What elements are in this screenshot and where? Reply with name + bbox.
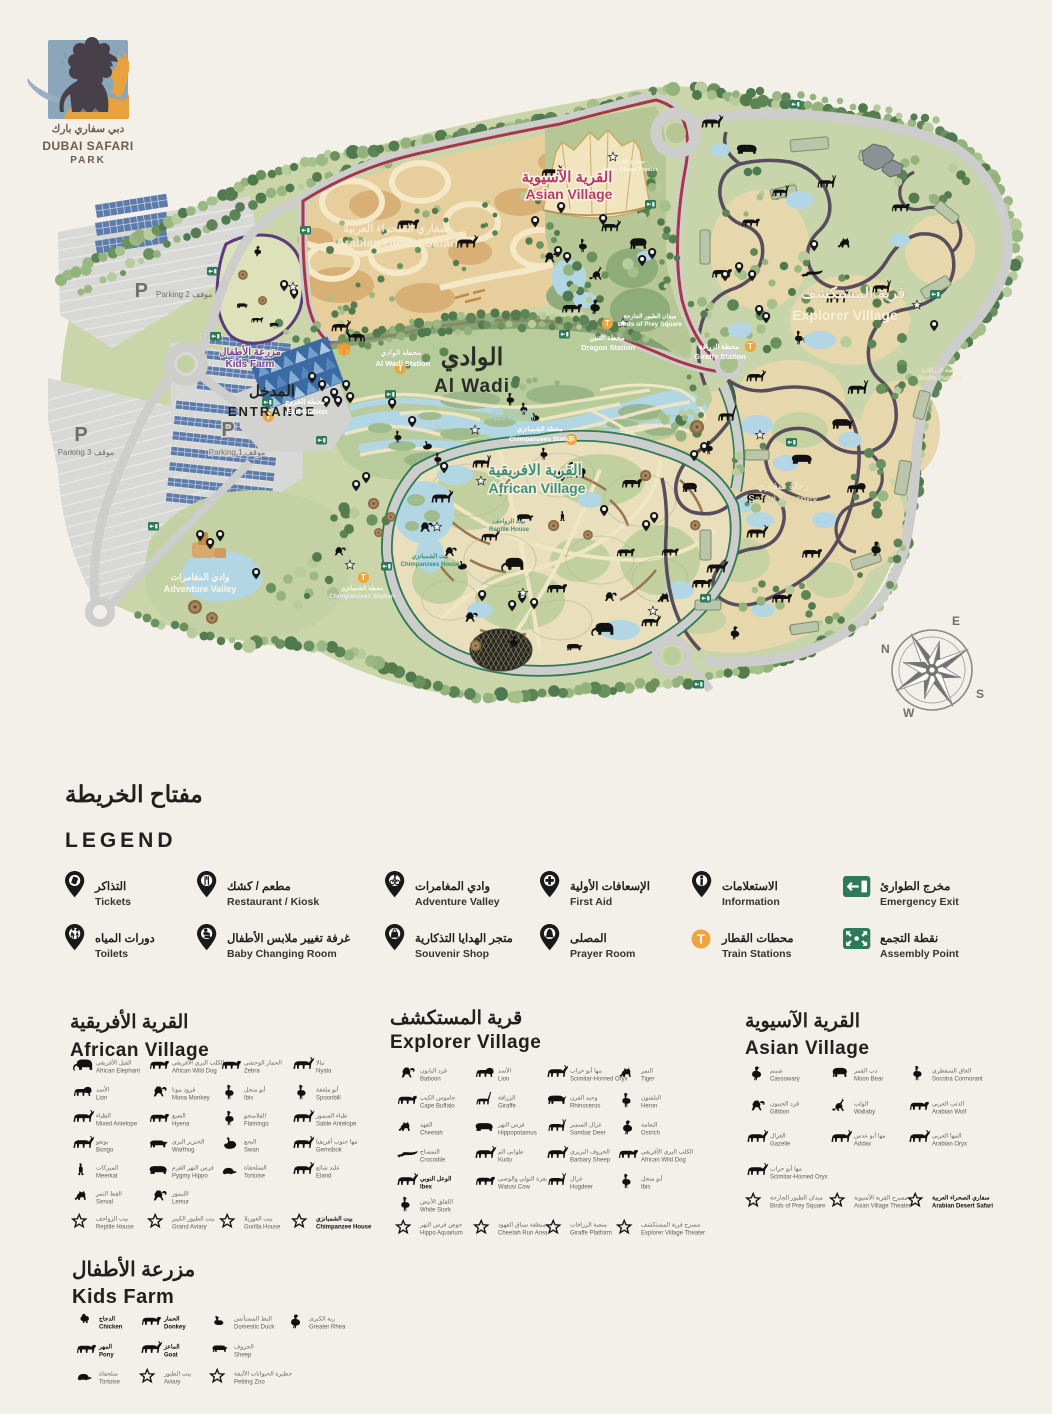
svg-text:Reptile House: Reptile House bbox=[489, 527, 530, 533]
svg-text:الحمار: الحمار bbox=[163, 1316, 180, 1323]
svg-text:Meerkat: Meerkat bbox=[96, 1174, 118, 1180]
svg-text:الولب: الولب bbox=[854, 1101, 869, 1108]
svg-text:Chimpanzees Station: Chimpanzees Station bbox=[509, 436, 575, 443]
svg-text:المهر: المهر bbox=[98, 1344, 112, 1351]
svg-text:Kids Farm: Kids Farm bbox=[226, 359, 275, 370]
svg-text:قرية المستكشف: قرية المستكشف bbox=[390, 1008, 522, 1029]
svg-text:دبي سفاري بارك: دبي سفاري بارك bbox=[52, 123, 125, 136]
svg-text:Safari Journey: Safari Journey bbox=[748, 494, 818, 505]
svg-text:الإسعافات الأولية: الإسعافات الأولية bbox=[570, 878, 650, 894]
svg-text:بيت الطيور الكبير: بيت الطيور الكبير bbox=[171, 1216, 215, 1223]
svg-text:Tortoise: Tortoise bbox=[99, 1380, 121, 1386]
svg-text:البلشون: البلشون bbox=[641, 1095, 661, 1102]
svg-text:منصة الزرافات: منصة الزرافات bbox=[570, 1222, 607, 1229]
svg-text:الماعز: الماعز bbox=[163, 1344, 180, 1351]
svg-text:الاستعلامات: الاستعلامات bbox=[722, 880, 778, 893]
svg-text:Wallaby: Wallaby bbox=[854, 1110, 875, 1116]
svg-text:الوادي: الوادي bbox=[441, 344, 504, 372]
svg-text:بيت الشمبانزي: بيت الشمبانزي bbox=[412, 553, 449, 560]
svg-text:Ibis: Ibis bbox=[641, 1185, 650, 1191]
svg-text:Parking 2 موقف: Parking 2 موقف bbox=[156, 290, 213, 299]
svg-text:White Stork: White Stork bbox=[420, 1208, 452, 1214]
svg-text:Petting Zoo: Petting Zoo bbox=[234, 1380, 265, 1386]
svg-text:شبنم: شبنم bbox=[770, 1069, 783, 1075]
svg-text:Tiger: Tiger bbox=[641, 1077, 654, 1083]
svg-text:مزرعة الأطفال: مزرعة الأطفال bbox=[72, 1256, 195, 1282]
svg-text:منصة الزرافات: منصة الزرافات bbox=[922, 367, 959, 374]
svg-text:Hippopotamus: Hippopotamus bbox=[498, 1131, 537, 1137]
svg-text:Lemur: Lemur bbox=[172, 1200, 189, 1206]
svg-text:القرية الآسيوية: القرية الآسيوية bbox=[745, 1009, 860, 1032]
svg-text:الفهد: الفهد bbox=[420, 1122, 433, 1129]
svg-text:Domestic Duck: Domestic Duck bbox=[234, 1325, 275, 1331]
svg-text:Pygmy Hippo: Pygmy Hippo bbox=[172, 1174, 208, 1180]
svg-text:نقطة التجمع: نقطة التجمع bbox=[880, 932, 938, 946]
svg-text:سفاري الصحراء العربية: سفاري الصحراء العربية bbox=[343, 223, 449, 236]
svg-text:Mixed Antelope: Mixed Antelope bbox=[96, 1122, 138, 1128]
svg-text:Arabian Desert Safari: Arabian Desert Safari bbox=[932, 1204, 993, 1210]
svg-text:محطة الشمبانزي: محطة الشمبانزي bbox=[341, 585, 384, 592]
svg-text:محطة الخروج: محطة الخروج bbox=[285, 398, 325, 406]
svg-text:Kids Farm: Kids Farm bbox=[72, 1286, 174, 1308]
svg-text:African Village: African Village bbox=[488, 480, 585, 496]
svg-text:African Elephant: African Elephant bbox=[96, 1069, 140, 1075]
svg-text:مزرعة الأطفال: مزرعة الأطفال bbox=[219, 346, 281, 358]
svg-text:Chicken: Chicken bbox=[99, 1325, 123, 1331]
svg-text:الوعل النوبي: الوعل النوبي bbox=[420, 1176, 452, 1183]
svg-text:النعامة: النعامة bbox=[641, 1122, 658, 1129]
svg-text:قرد الجيبون: قرد الجيبون bbox=[770, 1101, 799, 1108]
svg-text:ميدان الطيور الجارحة: ميدان الطيور الجارحة bbox=[770, 1195, 823, 1202]
svg-text:الخنزير البري: الخنزير البري bbox=[172, 1139, 205, 1146]
svg-text:ظباء السمور: ظباء السمور bbox=[315, 1113, 347, 1120]
svg-text:Restaurant / Kiosk: Restaurant / Kiosk bbox=[227, 896, 319, 908]
svg-text:African Wild Dog: African Wild Dog bbox=[172, 1069, 217, 1075]
svg-text:القرية الافريقية: القرية الافريقية bbox=[488, 462, 582, 479]
svg-text:بيت الزواحف: بيت الزواحف bbox=[493, 518, 526, 525]
svg-text:Emergency Exit: Emergency Exit bbox=[880, 896, 959, 908]
svg-text:محطة الوادي: محطة الوادي bbox=[381, 348, 422, 358]
svg-text:الخروف البربري: الخروف البربري bbox=[570, 1149, 610, 1156]
svg-text:الضبع: الضبع bbox=[172, 1113, 186, 1120]
svg-text:Adventure Valley: Adventure Valley bbox=[164, 584, 237, 594]
svg-text:First Aid: First Aid bbox=[570, 896, 612, 908]
svg-text:African Wild Dog: African Wild Dog bbox=[641, 1158, 686, 1164]
svg-text:ميدان الطيور الجارحة: ميدان الطيور الجارحة bbox=[624, 313, 677, 320]
svg-text:المصلى: المصلى bbox=[570, 932, 607, 945]
svg-text:S: S bbox=[976, 687, 984, 701]
svg-text:القرية الآسيوية: القرية الآسيوية bbox=[522, 168, 613, 186]
svg-text:سلحفاة: سلحفاة bbox=[99, 1371, 118, 1378]
svg-text:غزال السمبر: غزال السمبر bbox=[569, 1122, 602, 1129]
svg-text:Al Wadi: Al Wadi bbox=[434, 376, 510, 397]
svg-text:Asian Village: Asian Village bbox=[745, 1038, 869, 1059]
svg-text:بيت الشمبانزي: بيت الشمبانزي bbox=[316, 1216, 353, 1223]
svg-text:Giraffe Platform: Giraffe Platform bbox=[570, 1231, 612, 1237]
svg-text:مطعم / كشك: مطعم / كشك bbox=[227, 880, 291, 894]
svg-text:Heron: Heron bbox=[641, 1104, 657, 1110]
svg-text:قرد البابون: قرد البابون bbox=[420, 1068, 447, 1075]
svg-text:بونغو: بونغو bbox=[95, 1140, 109, 1146]
svg-text:Parking 3 موقف: Parking 3 موقف bbox=[58, 448, 115, 457]
svg-text:حوض قرس النهر: حوض قرس النهر bbox=[490, 407, 534, 414]
svg-text:Hyena: Hyena bbox=[172, 1122, 190, 1128]
svg-text:Kudu: Kudu bbox=[498, 1158, 512, 1164]
svg-text:الخروف: الخروف bbox=[234, 1344, 254, 1351]
svg-text:Barbary Sheep: Barbary Sheep bbox=[570, 1158, 611, 1164]
svg-text:Spoonbill: Spoonbill bbox=[316, 1096, 341, 1102]
svg-text:PARK: PARK bbox=[70, 155, 106, 166]
svg-text:P: P bbox=[221, 419, 234, 441]
svg-text:الدجاج: الدجاج bbox=[99, 1316, 115, 1323]
svg-text:مسرح قرية المستكشف: مسرح قرية المستكشف bbox=[641, 1222, 700, 1229]
svg-text:السلحفاة: السلحفاة bbox=[244, 1165, 267, 1172]
svg-text:دورات المياه: دورات المياه bbox=[95, 932, 155, 946]
svg-text:Hippo Aquarium: Hippo Aquarium bbox=[420, 1231, 463, 1237]
svg-text:Baby Changing Room: Baby Changing Room bbox=[227, 948, 337, 960]
svg-text:وحيد القرن: وحيد القرن bbox=[570, 1095, 598, 1102]
svg-text:بيت الزواحف: بيت الزواحف bbox=[96, 1216, 129, 1223]
svg-text:Nyala: Nyala bbox=[316, 1069, 332, 1075]
svg-text:مخرج الطوارئ: مخرج الطوارئ bbox=[880, 880, 950, 894]
svg-text:Giraffe Station: Giraffe Station bbox=[694, 352, 746, 361]
svg-text:Grand Aviary: Grand Aviary bbox=[172, 1225, 207, 1231]
svg-text:Sambar Deer: Sambar Deer bbox=[570, 1131, 606, 1137]
svg-text:حوض فرس النهر: حوض فرس النهر bbox=[419, 1222, 463, 1229]
svg-text:Arabian Oryx: Arabian Oryx bbox=[932, 1142, 967, 1148]
svg-text:Cheetah: Cheetah bbox=[420, 1131, 443, 1137]
svg-text:القرية الأفريقية: القرية الأفريقية bbox=[70, 1009, 188, 1033]
svg-text:Ibex: Ibex bbox=[420, 1185, 433, 1191]
svg-text:Socotra Cormorant: Socotra Cormorant bbox=[932, 1077, 983, 1083]
svg-text:Explorer Village: Explorer Village bbox=[390, 1032, 541, 1053]
svg-text:طوابي الم: طوابي الم bbox=[498, 1149, 524, 1156]
svg-text:Tickets: Tickets bbox=[95, 896, 131, 908]
svg-text:Zebra: Zebra bbox=[244, 1069, 260, 1075]
svg-text:التمساح: التمساح bbox=[420, 1149, 440, 1156]
svg-text:Watusi Cow: Watusi Cow bbox=[498, 1185, 530, 1191]
svg-text:Eland: Eland bbox=[316, 1174, 331, 1180]
svg-text:وادي المغامرات: وادي المغامرات bbox=[415, 880, 490, 894]
svg-text:E: E bbox=[952, 614, 960, 628]
svg-text:Adventure Valley: Adventure Valley bbox=[415, 896, 500, 908]
svg-text:رحلة سفاري: رحلة سفاري bbox=[757, 481, 809, 492]
svg-text:التذاكر: التذاكر bbox=[94, 880, 126, 894]
svg-text:قرود مونا: قرود مونا bbox=[172, 1087, 195, 1094]
svg-text:محطات القطار: محطات القطار bbox=[721, 932, 794, 946]
svg-text:مسرح القرية الآسيوية: مسرح القرية الآسيوية bbox=[854, 1194, 908, 1202]
svg-text:Hippo Aquarium: Hippo Aquarium bbox=[489, 416, 535, 422]
svg-text:Hogdeer: Hogdeer bbox=[570, 1185, 593, 1191]
svg-text:مفتاح الخريطة: مفتاح الخريطة bbox=[65, 781, 203, 809]
svg-text:Information: Information bbox=[722, 896, 780, 908]
svg-text:Asian Village Theater: Asian Village Theater bbox=[854, 1204, 911, 1210]
svg-text:Addax: Addax bbox=[854, 1142, 871, 1148]
svg-text:فرس النهر: فرس النهر bbox=[497, 1122, 525, 1129]
svg-text:فرس النهر القزم: فرس النهر القزم bbox=[172, 1165, 214, 1172]
svg-text:المها العربي: المها العربي bbox=[932, 1133, 962, 1140]
svg-text:علند شائع: علند شائع bbox=[316, 1165, 340, 1172]
svg-text:W: W bbox=[903, 706, 915, 720]
svg-text:Pony: Pony bbox=[99, 1353, 114, 1359]
svg-text:منطقة سباق الفهود: منطقة سباق الفهود bbox=[498, 1222, 546, 1229]
svg-text:جاموس الكيب: جاموس الكيب bbox=[420, 1095, 456, 1102]
svg-text:Reptile House: Reptile House bbox=[96, 1225, 134, 1231]
svg-text:الميركات: الميركات bbox=[96, 1165, 119, 1172]
svg-text:African Village: African Village bbox=[70, 1040, 209, 1061]
svg-text:Explorer Village: Explorer Village bbox=[792, 307, 898, 323]
svg-text:Giraffe Platform: Giraffe Platform bbox=[917, 376, 962, 382]
svg-text:بيت الطيور: بيت الطيور bbox=[163, 1371, 192, 1378]
svg-text:Sable Antelope: Sable Antelope bbox=[316, 1122, 357, 1128]
svg-text:البجع: البجع bbox=[244, 1139, 257, 1146]
svg-text:نيالا: نيالا bbox=[316, 1060, 325, 1067]
svg-text:P: P bbox=[135, 280, 148, 302]
svg-text:P: P bbox=[74, 424, 87, 446]
svg-text:Sheep: Sheep bbox=[234, 1353, 252, 1359]
svg-text:Gibbon: Gibbon bbox=[770, 1110, 789, 1116]
svg-text:Ibis: Ibis bbox=[244, 1096, 253, 1102]
svg-text:الظباء: الظباء bbox=[96, 1113, 111, 1120]
svg-text:Chimpanzees House: Chimpanzees House bbox=[401, 562, 460, 568]
svg-text:غرفة تغيير ملابس الأطفال: غرفة تغيير ملابس الأطفال bbox=[227, 930, 351, 946]
svg-text:Gemsbok: Gemsbok bbox=[316, 1148, 343, 1154]
svg-text:متجر الهدايا التذكارية: متجر الهدايا التذكارية bbox=[415, 932, 513, 946]
svg-text:الغزال: الغزال bbox=[770, 1133, 786, 1140]
svg-text:Scimitar-Horned Oryx: Scimitar-Horned Oryx bbox=[570, 1077, 628, 1083]
svg-text:Warthog: Warthog bbox=[172, 1148, 194, 1154]
svg-text:Al Wadi Station: Al Wadi Station bbox=[376, 359, 431, 368]
svg-text:LEGEND: LEGEND bbox=[65, 829, 177, 852]
svg-text:Bongo: Bongo bbox=[96, 1148, 114, 1154]
svg-text:رية الكبرى: رية الكبرى bbox=[309, 1316, 335, 1323]
svg-text:محطة الشمبانزي: محطة الشمبانزي bbox=[517, 425, 564, 434]
svg-text:Serval: Serval bbox=[96, 1200, 113, 1206]
svg-text:Ostrich: Ostrich bbox=[641, 1131, 660, 1137]
svg-text:القط النمر: القط النمر bbox=[95, 1191, 122, 1198]
svg-text:Parking 1 موقف: Parking 1 موقف bbox=[209, 448, 266, 457]
svg-text:الفلامنجو: الفلامنجو bbox=[243, 1113, 266, 1120]
svg-text:Prayer Room: Prayer Room bbox=[570, 948, 635, 960]
svg-text:Mona Monkey: Mona Monkey bbox=[172, 1096, 210, 1102]
svg-text:محطة الزرافة: محطة الزرافة bbox=[699, 343, 739, 351]
svg-text:Exit Station: Exit Station bbox=[286, 407, 328, 416]
svg-text:المدخل: المدخل bbox=[249, 383, 295, 400]
svg-text:Souvenir Shop: Souvenir Shop bbox=[415, 948, 489, 960]
svg-text:Arabian Wolf: Arabian Wolf bbox=[932, 1110, 967, 1116]
svg-text:Chimpanzees Station: Chimpanzees Station bbox=[329, 593, 395, 600]
svg-text:Dragon Station: Dragon Station bbox=[581, 343, 635, 352]
svg-text:Scimitar-Horned Oryx: Scimitar-Horned Oryx bbox=[770, 1175, 828, 1181]
svg-text:دب القمر: دب القمر bbox=[853, 1068, 878, 1075]
svg-text:Lion: Lion bbox=[96, 1096, 107, 1102]
svg-text:Birds of Prey Square: Birds of Prey Square bbox=[770, 1204, 826, 1210]
svg-text:Asian Village: Asian Village bbox=[526, 186, 613, 202]
svg-text:بيت الغوريلا: بيت الغوريلا bbox=[244, 1216, 273, 1223]
svg-text:DUBAI SAFARI: DUBAI SAFARI bbox=[42, 139, 133, 153]
svg-text:الليمور: الليمور bbox=[171, 1191, 189, 1198]
svg-text:محطة التنين: محطة التنين bbox=[589, 334, 625, 342]
svg-text:وادي المغامرات: وادي المغامرات bbox=[171, 572, 230, 583]
svg-text:Crocodile: Crocodile bbox=[420, 1158, 446, 1164]
svg-text:Moon Bear: Moon Bear bbox=[854, 1077, 883, 1083]
svg-text:Goat: Goat bbox=[164, 1353, 178, 1359]
svg-text:النمر: النمر bbox=[640, 1068, 653, 1075]
svg-text:Gazelle: Gazelle bbox=[770, 1142, 791, 1148]
svg-text:Aviary: Aviary bbox=[164, 1380, 181, 1386]
svg-text:Flamingo: Flamingo bbox=[244, 1122, 269, 1128]
svg-text:T: T bbox=[697, 932, 705, 947]
svg-text:مسرح القرية: مسرح القرية bbox=[615, 158, 645, 165]
svg-text:قرية المستكشف: قرية المستكشف bbox=[801, 285, 905, 302]
svg-text:غزال: غزال bbox=[570, 1176, 582, 1183]
svg-text:الزرافة: الزرافة bbox=[498, 1095, 516, 1102]
svg-text:Rhinoceros: Rhinoceros bbox=[570, 1104, 600, 1110]
svg-text:Gorilla House: Gorilla House bbox=[244, 1225, 281, 1231]
svg-text:N: N bbox=[881, 642, 890, 656]
svg-text:Explorer Village Theater: Explorer Village Theater bbox=[641, 1231, 705, 1237]
svg-text:الذئب العربي: الذئب العربي bbox=[932, 1101, 965, 1108]
svg-text:بقرة التولي والوصي: بقرة التولي والوصي bbox=[498, 1176, 548, 1183]
svg-text:Assembly Point: Assembly Point bbox=[880, 948, 959, 960]
svg-text:Birds of Prey Square: Birds of Prey Square bbox=[618, 321, 683, 328]
svg-text:Giraffe: Giraffe bbox=[498, 1104, 517, 1110]
svg-text:Greater Rhea: Greater Rhea bbox=[309, 1325, 346, 1331]
svg-text:Train Stations: Train Stations bbox=[722, 948, 792, 960]
svg-text:الحمار الوحشي: الحمار الوحشي bbox=[244, 1060, 282, 1067]
svg-text:Asian Village Theater: Asian Village Theater bbox=[602, 167, 658, 173]
svg-text:Swan: Swan bbox=[244, 1148, 259, 1154]
svg-text:Arabian Desert Safari: Arabian Desert Safari bbox=[336, 236, 458, 250]
svg-text:Baboon: Baboon bbox=[420, 1077, 441, 1083]
svg-text:Donkey: Donkey bbox=[164, 1325, 186, 1331]
svg-text:Tortoise: Tortoise bbox=[244, 1174, 266, 1180]
svg-text:Cape Buffalo: Cape Buffalo bbox=[420, 1104, 455, 1110]
svg-text:Cheetah Run Area: Cheetah Run Area bbox=[498, 1231, 548, 1237]
svg-text:الغاق السقطري: الغاق السقطري bbox=[932, 1068, 972, 1075]
svg-text:Toilets: Toilets bbox=[95, 948, 128, 960]
svg-text:سفاري الصحراء العربية: سفاري الصحراء العربية bbox=[932, 1195, 990, 1202]
svg-text:Lion: Lion bbox=[498, 1077, 509, 1083]
svg-text:Cassowary: Cassowary bbox=[770, 1077, 800, 1083]
svg-text:Chimpanzee House: Chimpanzee House bbox=[316, 1225, 372, 1231]
